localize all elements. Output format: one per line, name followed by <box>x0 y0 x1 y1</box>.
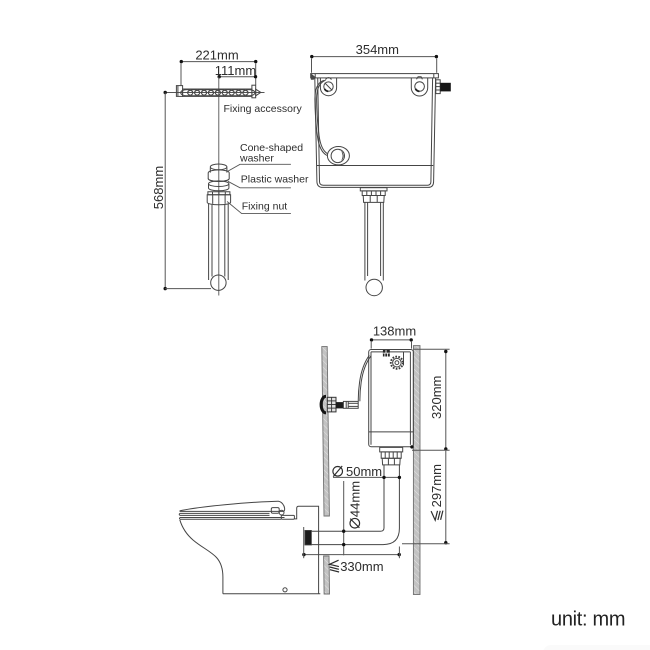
svg-text:Fixing nut: Fixing nut <box>242 200 288 212</box>
svg-text:Fixing accessory: Fixing accessory <box>224 103 303 115</box>
svg-text:297mm: 297mm <box>429 464 444 507</box>
svg-text:washer: washer <box>239 153 274 165</box>
svg-text:Plastic washer: Plastic washer <box>241 174 309 186</box>
svg-text:44mm: 44mm <box>347 481 362 517</box>
svg-text:111mm: 111mm <box>215 63 256 78</box>
svg-text:unit: mm: unit: mm <box>551 609 625 631</box>
svg-text:320mm: 320mm <box>429 376 444 419</box>
svg-text:138mm: 138mm <box>373 323 416 338</box>
svg-text:330mm: 330mm <box>340 559 383 574</box>
svg-text:568mm: 568mm <box>151 166 166 209</box>
svg-text:354mm: 354mm <box>356 42 399 57</box>
svg-text:221mm: 221mm <box>195 48 238 63</box>
